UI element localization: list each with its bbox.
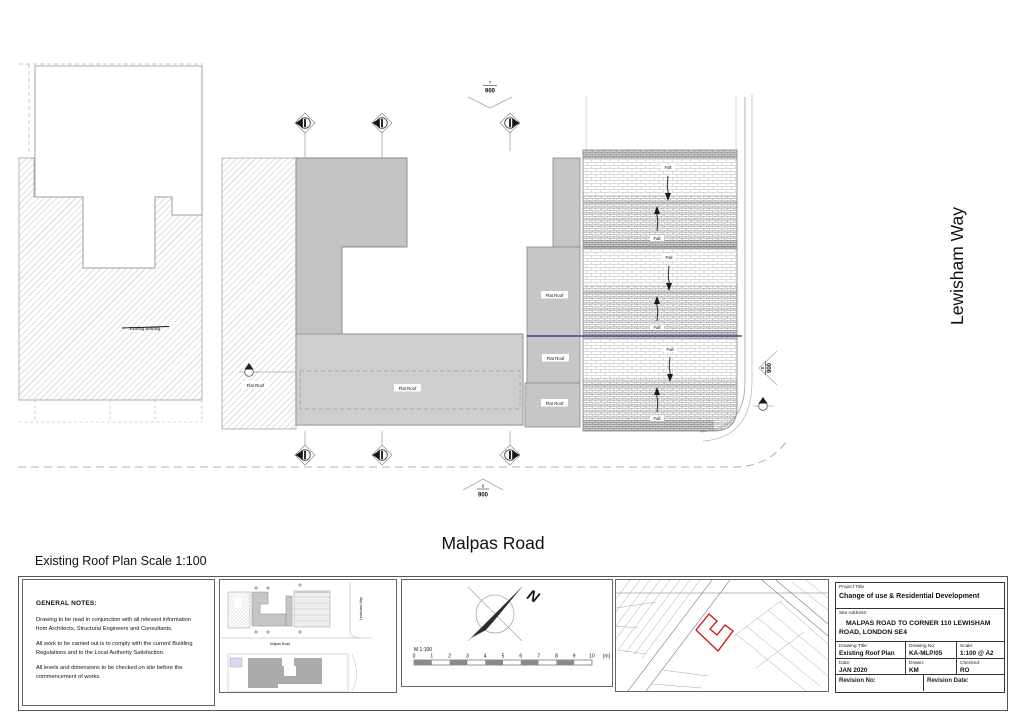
svg-text:7: 7 bbox=[537, 654, 540, 660]
svg-text:5: 5 bbox=[502, 654, 505, 660]
main-building-roof: Flat Roof bbox=[296, 158, 523, 425]
key-plan-road-label: Malpas Road bbox=[270, 642, 290, 646]
svg-text:6: 6 bbox=[482, 484, 485, 489]
ref-marker-top: 7 900 bbox=[468, 80, 512, 108]
roof-plan-drawing: Existing Building Flat Roof Flat Roof bbox=[0, 0, 1024, 575]
location-map bbox=[616, 580, 828, 691]
site-address-label: Site Address: bbox=[839, 611, 1001, 617]
date-value: JAN 2020 bbox=[839, 667, 902, 675]
drawing-no-label: Drawing No: bbox=[909, 644, 953, 650]
east-flat-roofs: Flat Roof Flat Roof Flat Roof bbox=[525, 158, 580, 427]
map-site-outline bbox=[696, 614, 733, 651]
flat-roof-label: Flat Roof bbox=[242, 381, 269, 389]
svg-text:9: 9 bbox=[573, 654, 576, 660]
svg-text:Flat Roof: Flat Roof bbox=[247, 383, 266, 388]
notes-paragraph: All levels and dimensions to be checked … bbox=[36, 664, 196, 681]
svg-text:Fall: Fall bbox=[654, 416, 661, 421]
flat-roof-label: Flat Roof bbox=[542, 354, 569, 362]
drawing-sheet: Existing Building Flat Roof Flat Roof bbox=[0, 0, 1024, 724]
svg-text:900: 900 bbox=[478, 493, 489, 499]
svg-text:Fall: Fall bbox=[667, 347, 674, 352]
section-marker bbox=[500, 113, 520, 133]
checked-label: Checked: bbox=[960, 661, 1001, 667]
key-plan-panel: Lewisham Way Malpas Road bbox=[219, 579, 397, 693]
side-road-label: Lewisham Way bbox=[947, 207, 967, 325]
revision-no-label: Revision No: bbox=[839, 678, 920, 685]
checked-value: RO bbox=[960, 667, 1001, 675]
notes-title: GENERAL NOTES: bbox=[36, 600, 204, 607]
key-plan-block bbox=[228, 654, 357, 692]
project-title: Change of use & Residential Development bbox=[839, 593, 1001, 601]
notes-paragraph: Drawing to be read in conjunction with a… bbox=[36, 616, 196, 633]
date-label: Date: bbox=[839, 661, 902, 667]
scale-bar: M 1:100 0 1 2 3 4 5 6 7 8 9 10 [m] bbox=[413, 647, 611, 665]
svg-text:1: 1 bbox=[430, 654, 433, 660]
svg-text:Flat Roof: Flat Roof bbox=[399, 386, 418, 391]
key-plan-side-road-label: Lewisham Way bbox=[359, 597, 363, 620]
compass-scale-graphic: N M 1:100 0 1 2 3 4 5 6 7 8 9 10 [m] bbox=[402, 580, 612, 686]
section-marker bbox=[372, 113, 392, 133]
north-label: N bbox=[524, 587, 543, 608]
north-arrow: N bbox=[468, 587, 543, 641]
ref-marker-bottom: 6 900 bbox=[463, 479, 503, 499]
plan-caption: Existing Roof Plan Scale 1:100 bbox=[35, 554, 207, 568]
drawn-value: KM bbox=[909, 667, 953, 675]
svg-text:0: 0 bbox=[413, 654, 416, 660]
project-title-label: Project Title bbox=[839, 585, 1001, 591]
svg-text:Fall: Fall bbox=[665, 165, 672, 170]
flat-roof-label: Flat Roof bbox=[541, 291, 568, 299]
scale-bar-unit: [m] bbox=[603, 654, 611, 660]
drawing-title: Existing Roof Plan bbox=[839, 650, 902, 658]
svg-text:6: 6 bbox=[519, 654, 522, 660]
compass-scale-panel: N M 1:100 0 1 2 3 4 5 6 7 8 9 10 [m] bbox=[401, 579, 613, 687]
scale-label: Scale: bbox=[960, 644, 1001, 650]
svg-text:2: 2 bbox=[448, 654, 451, 660]
svg-text:900: 900 bbox=[485, 89, 496, 95]
svg-text:Flat Roof: Flat Roof bbox=[547, 356, 566, 361]
section-marker bbox=[500, 445, 520, 465]
drawing-title-label: Drawing Title: bbox=[839, 644, 902, 650]
notes-paragraph: All work to be carried out is to comply … bbox=[36, 640, 196, 657]
svg-text:Flat Roof: Flat Roof bbox=[546, 401, 565, 406]
road-label: Malpas Road bbox=[441, 533, 544, 553]
drawing-no: KA-MLP/05 bbox=[909, 650, 953, 658]
svg-text:Fall: Fall bbox=[666, 255, 673, 260]
location-map-panel bbox=[615, 579, 829, 692]
svg-text:8: 8 bbox=[555, 654, 558, 660]
svg-text:7: 7 bbox=[489, 80, 492, 85]
section-marker bbox=[295, 113, 315, 133]
svg-text:900: 900 bbox=[767, 362, 773, 373]
svg-text:10: 10 bbox=[589, 654, 595, 660]
section-marker bbox=[372, 445, 392, 465]
general-notes-panel: GENERAL NOTES: Drawing to be read in con… bbox=[22, 579, 215, 706]
svg-text:Fall: Fall bbox=[654, 236, 661, 241]
scale-value: 1:100 @ A2 bbox=[960, 650, 1001, 658]
roof-level-marker-east bbox=[753, 397, 773, 410]
section-marker bbox=[295, 445, 315, 465]
site-address: MALPAS ROAD TO CORNER 110 LEWISHAM ROAD,… bbox=[839, 619, 1001, 637]
flat-roof-label: Flat Roof bbox=[541, 399, 568, 407]
svg-text:4: 4 bbox=[484, 654, 487, 660]
ref-marker-right: 8 900 bbox=[759, 351, 777, 385]
footer-strip: GENERAL NOTES: Drawing to be read in con… bbox=[18, 576, 1008, 711]
svg-text:3: 3 bbox=[466, 654, 469, 660]
svg-text:Flat Roof: Flat Roof bbox=[546, 293, 565, 298]
drawn-label: Drawn: bbox=[909, 661, 953, 667]
svg-text:Fall: Fall bbox=[654, 325, 661, 330]
adjacent-property-west: Existing Building bbox=[19, 64, 203, 422]
key-plan-roof: Lewisham Way Malpas Road bbox=[222, 582, 372, 646]
key-plan-thumbnail: Lewisham Way Malpas Road bbox=[220, 580, 396, 692]
scale-bar-label: M 1:100 bbox=[414, 647, 432, 653]
map-buildings bbox=[616, 580, 828, 691]
flat-roof-label: Flat Roof bbox=[394, 384, 421, 392]
title-block: Project Title Change of use & Residentia… bbox=[835, 582, 1005, 693]
revision-date-label: Revision Date: bbox=[927, 678, 1001, 685]
